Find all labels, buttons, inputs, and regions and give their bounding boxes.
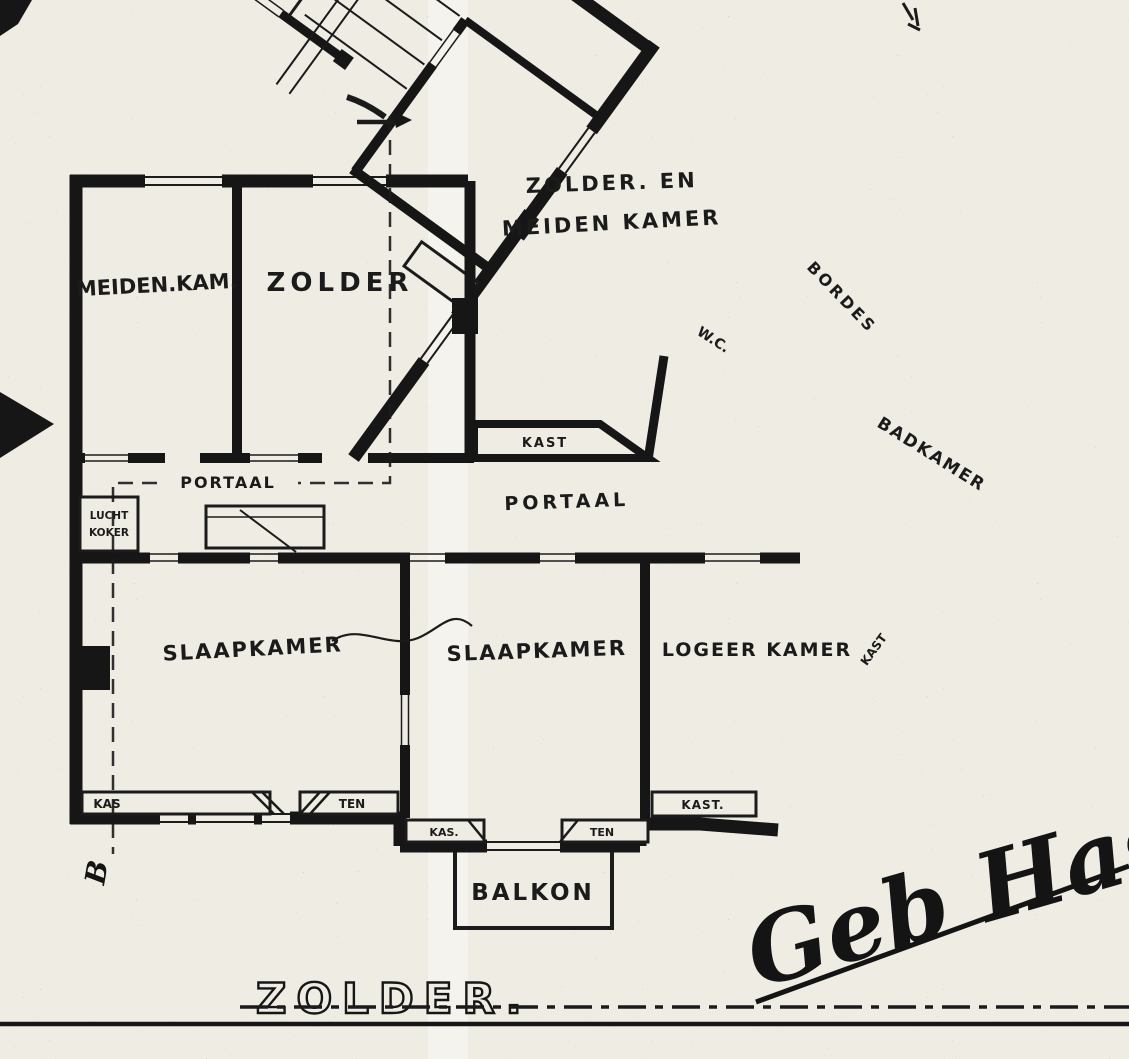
room-label-zolder: ZOLDER xyxy=(267,268,414,298)
floor-plan-drawing: LUCHT KOKER xyxy=(0,0,1129,1059)
scan-light-band xyxy=(428,0,468,1059)
closet-label-kas-mid: KAS. xyxy=(429,826,458,839)
closet-label-kast-top: KAST xyxy=(522,436,568,451)
portaal-closet-box xyxy=(206,506,324,548)
closet-label-ten-mid: TEN xyxy=(590,826,614,839)
closet-label-kast-bottom: KAST. xyxy=(681,798,724,812)
room-label-portaal-main: PORTAAL xyxy=(504,489,630,515)
room-label-balkon: BALKON xyxy=(471,880,595,906)
luchtkoker-left-box xyxy=(80,497,138,551)
shaft-label-lucht-left-1: LUCHT xyxy=(90,510,129,522)
floor-plan-sheet: LUCHT KOKER xyxy=(0,0,1129,1059)
chimney-zolder xyxy=(452,298,478,334)
chimney-left xyxy=(80,646,110,690)
closet-label-kas-left: KAS xyxy=(93,797,120,811)
shaft-label-lucht-left-2: KOKER xyxy=(89,527,129,539)
room-label-portaal-small: PORTAAL xyxy=(180,473,276,492)
room-label-logeer-kamer: LOGEER KAMER xyxy=(662,639,852,661)
sheet-title: ZOLDER. xyxy=(256,974,532,1023)
closet-label-ten-left: TEN xyxy=(339,797,365,811)
